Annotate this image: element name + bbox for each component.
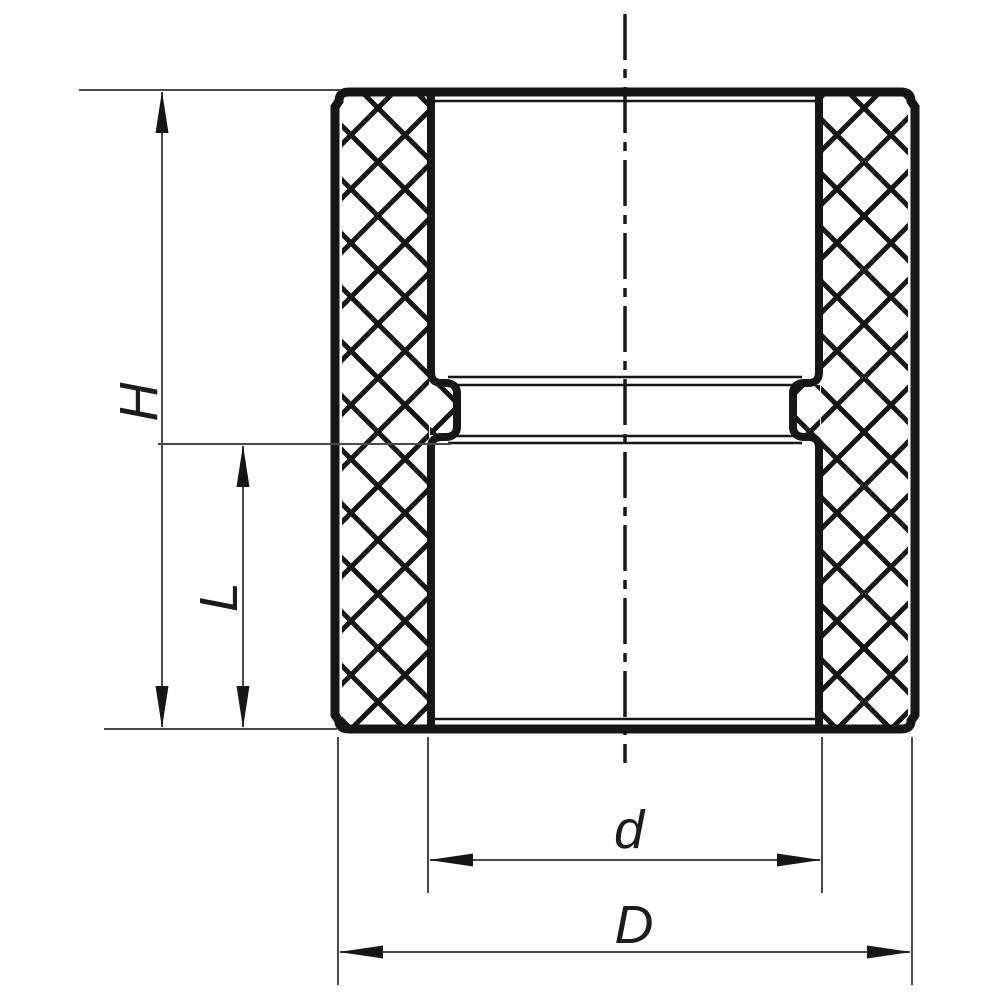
left-center-stop-hatch [430,385,455,435]
right-center-stop-hatch [795,385,820,435]
right-wall-hatch [821,95,908,726]
technical-drawing: H L d D [0,0,1000,1000]
label-overall-height: H [109,382,169,422]
left-wall-hatch [342,95,429,726]
label-inner-diameter: d [614,800,646,860]
label-outer-diameter: D [615,895,654,955]
coupling-diagram-svg: H L d D [0,0,1000,1000]
label-socket-depth: L [189,582,249,612]
